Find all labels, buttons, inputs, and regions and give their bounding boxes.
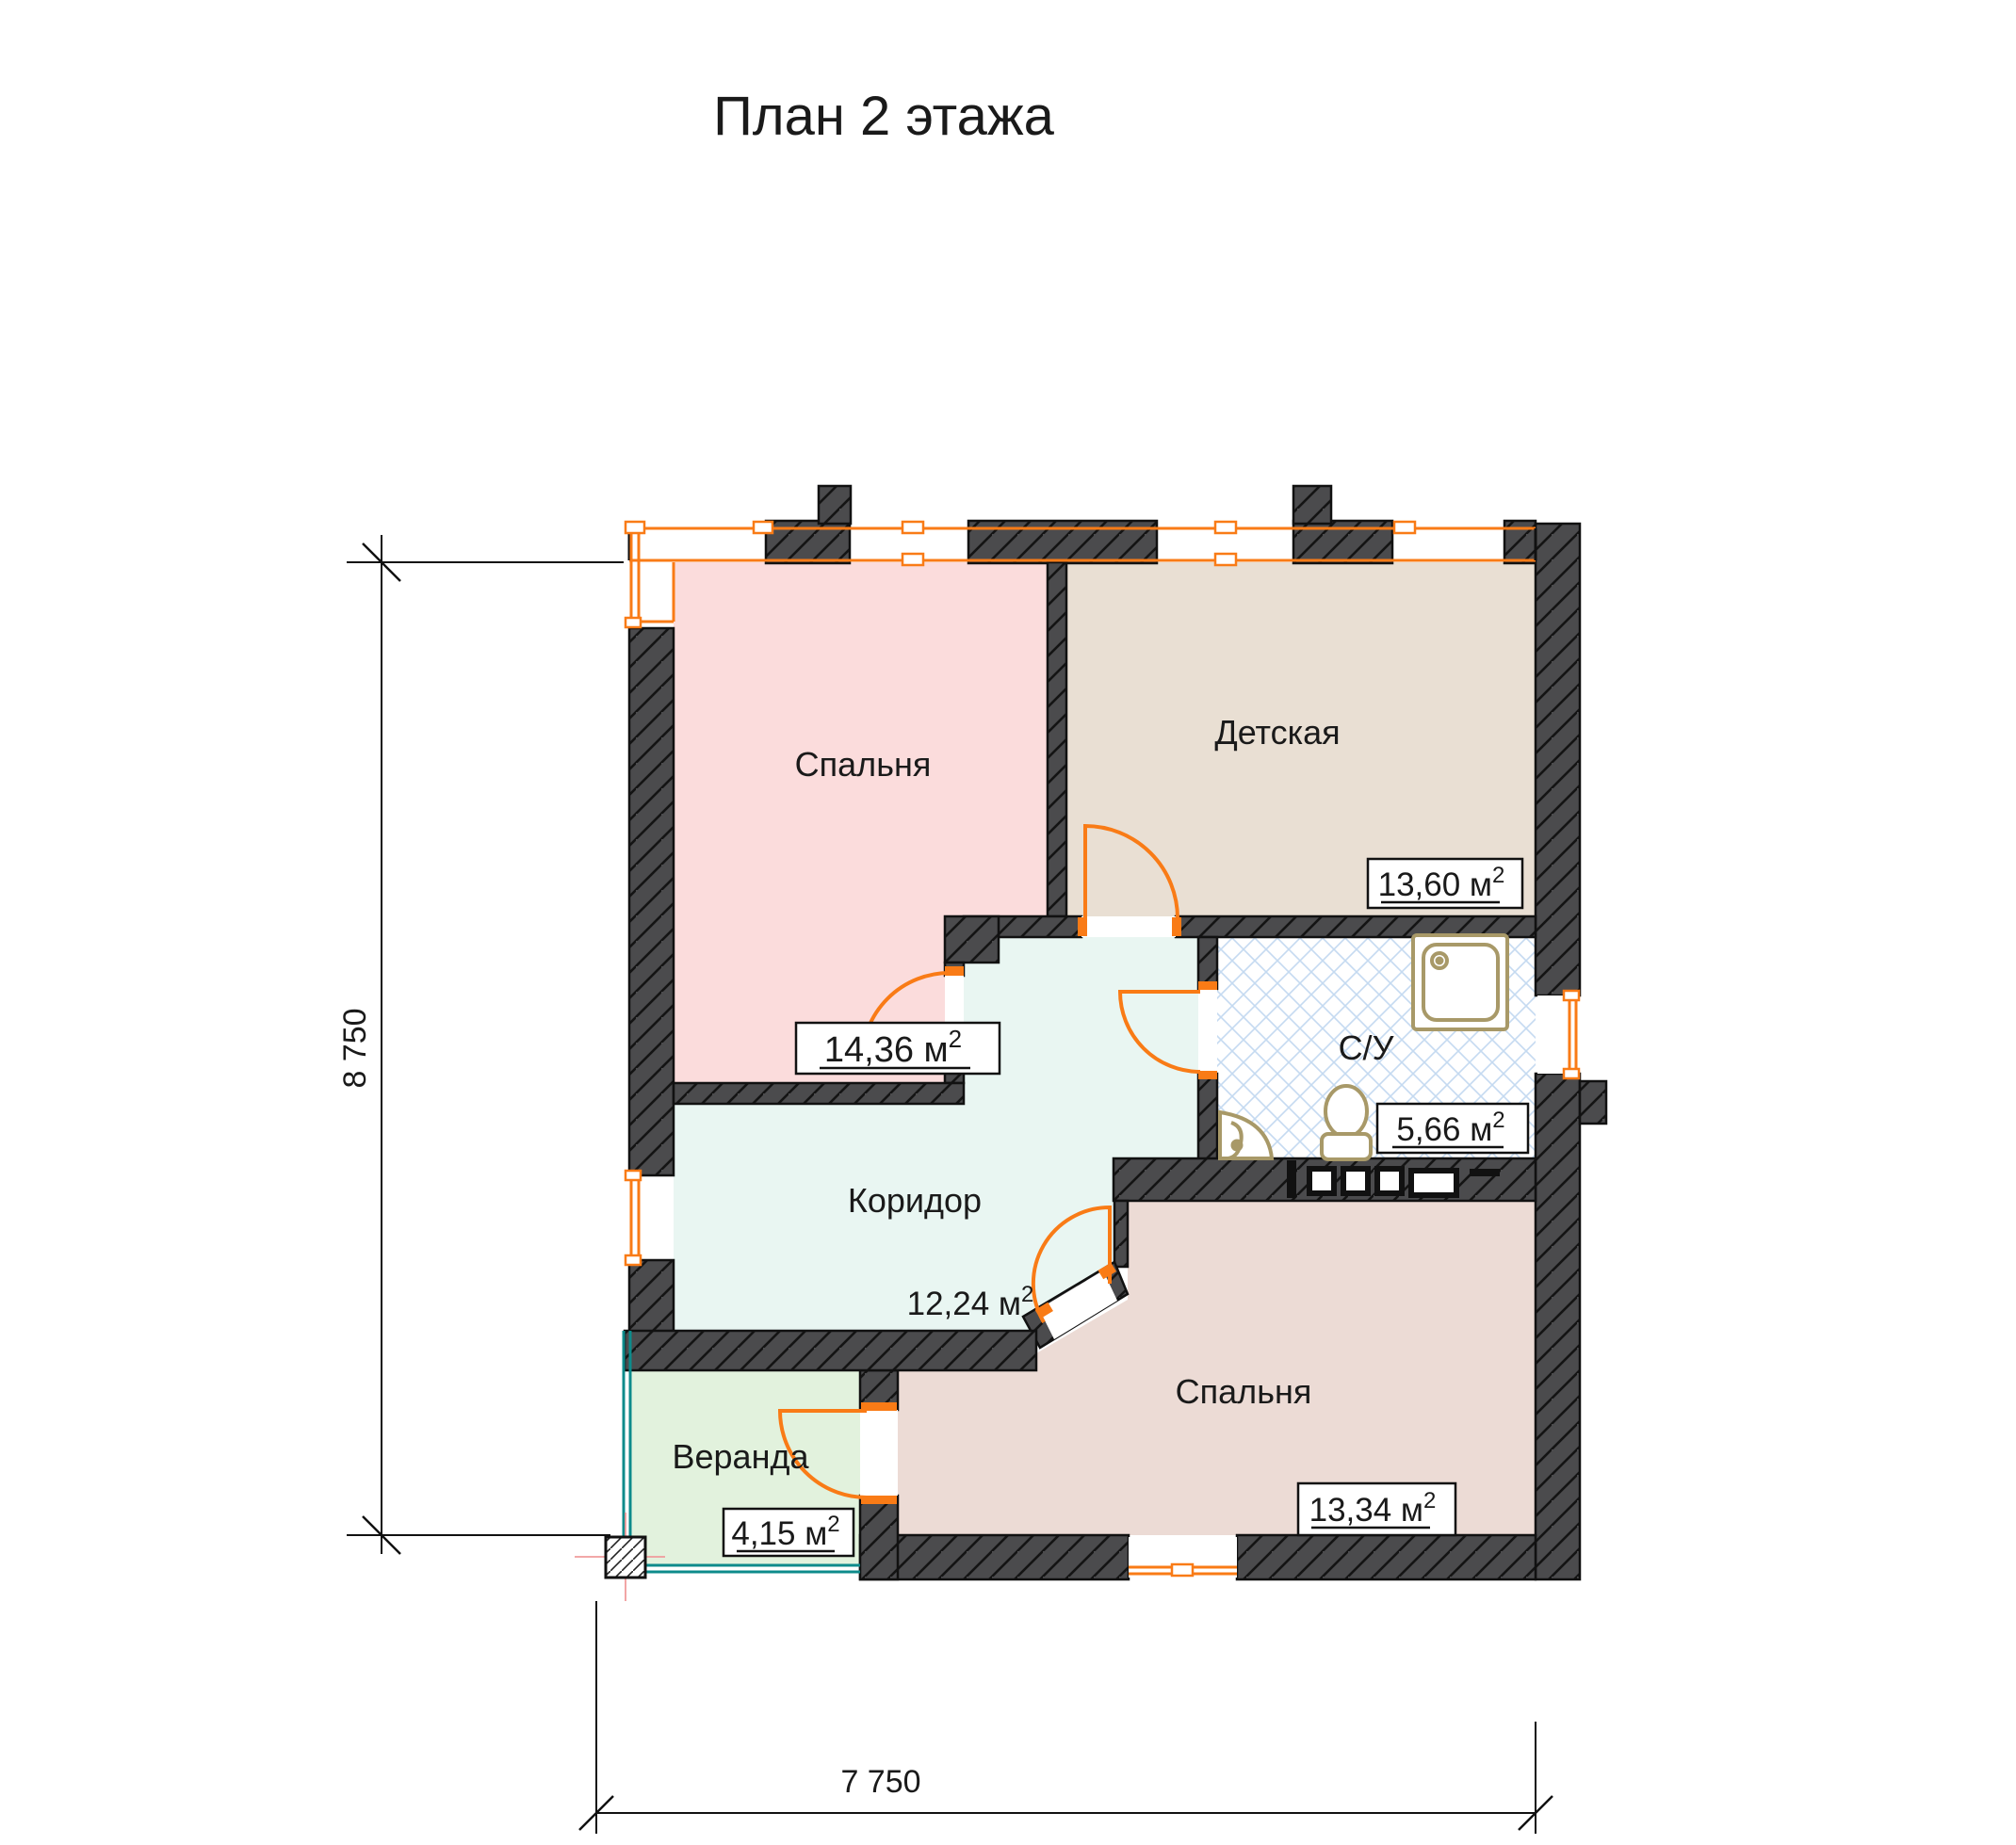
toilet-fixture [1325, 1086, 1367, 1137]
door-jamb [861, 1496, 897, 1504]
wall-segment [1198, 1074, 1217, 1160]
wall-segment [945, 916, 999, 963]
area-box-nursery: 13,60 м2 [1368, 859, 1522, 908]
wall-segment [1048, 562, 1066, 916]
area-value: 13,34 м2 [1309, 1488, 1437, 1529]
door-jamb [1198, 981, 1217, 990]
radiator-symbol [1377, 1169, 1402, 1193]
room-label-bathroom: С/У [1339, 1028, 1395, 1067]
door-opening [1198, 989, 1217, 1074]
wall-segment [629, 1260, 674, 1333]
area-value: 5,66 м2 [1396, 1108, 1504, 1148]
area-box-veranda: 4,15 м2 [723, 1509, 854, 1556]
dim-text-width: 7 750 [840, 1764, 920, 1800]
shower-drain [1438, 959, 1442, 963]
door-opening [860, 1410, 898, 1496]
door-jamb [1078, 917, 1087, 936]
room-label-veranda: Веранда [673, 1437, 810, 1476]
area-value: 13,60 м2 [1378, 863, 1505, 903]
window-marker [1215, 554, 1236, 565]
wall-segment [1536, 524, 1580, 995]
wall-segment [625, 1331, 1036, 1370]
window-marker [1215, 522, 1236, 533]
window-marker [1394, 522, 1415, 533]
area-value: 14,36 м2 [824, 1025, 962, 1070]
wall-segment [674, 1083, 964, 1104]
door-opening [1081, 916, 1176, 937]
floor-plan-page: План 2 этажа [0, 0, 2016, 1845]
window-marker [626, 522, 644, 533]
wall-segment [1198, 937, 1217, 989]
window-marker [754, 522, 772, 533]
window-marker [626, 1171, 641, 1180]
area-box-bathroom: 5,66 м2 [1377, 1104, 1528, 1153]
room-label-bedroom-bottom: Спальня [1176, 1372, 1312, 1411]
chimney-block [819, 486, 851, 524]
radiator-symbol [1287, 1160, 1296, 1198]
wall-segment [860, 1535, 1129, 1579]
wall-segment [1536, 1074, 1580, 1579]
room-label-nursery: Детская [1214, 713, 1340, 752]
floor-plan-canvas: План 2 этажа [0, 0, 2016, 1845]
wall-segment [629, 628, 674, 1175]
dim-text-height: 8 750 [337, 1008, 373, 1088]
window-marker [626, 618, 641, 627]
door-jamb [1198, 1071, 1217, 1079]
area-box-bedroom-top: 14,36 м2 [796, 1023, 1000, 1074]
window-left-corridor [631, 1175, 639, 1260]
wall-protrusion [1580, 1081, 1606, 1124]
window-marker [1172, 1564, 1193, 1576]
radiator-symbol [1343, 1169, 1368, 1193]
rooms [629, 562, 1536, 1565]
wall-segment [860, 1496, 898, 1579]
window-marker [902, 522, 923, 533]
door-jamb [1172, 917, 1181, 936]
toilet-fixture [1322, 1134, 1371, 1159]
page-title: План 2 этажа [713, 86, 1055, 147]
radiator-symbol [1411, 1171, 1456, 1195]
corner-post [606, 1537, 645, 1578]
window-opening [1537, 995, 1578, 1074]
vent-dash [1470, 1169, 1500, 1176]
window-marker [1564, 1069, 1579, 1078]
chimney-block [1293, 486, 1331, 524]
door-jamb [945, 966, 964, 976]
radiator-symbol [1309, 1169, 1334, 1193]
area-value-corridor: 12,24 м2 [907, 1282, 1034, 1322]
window-marker [902, 554, 923, 565]
glazing-bottom [624, 1565, 860, 1572]
window-marker [1564, 991, 1579, 1000]
area-value: 4,15 м2 [731, 1512, 839, 1552]
room-label-bedroom-top: Спальня [795, 745, 932, 784]
area-box-bedroom-bottom: 13,34 м2 [1298, 1483, 1455, 1535]
window-left-top [631, 526, 674, 624]
door-jamb [861, 1402, 897, 1411]
wall-segment [1237, 1535, 1536, 1579]
wall-segment [1114, 1201, 1128, 1267]
room-label-corridor: Коридор [848, 1181, 982, 1220]
sink-drain [1233, 1141, 1242, 1150]
window-marker [626, 1255, 641, 1265]
